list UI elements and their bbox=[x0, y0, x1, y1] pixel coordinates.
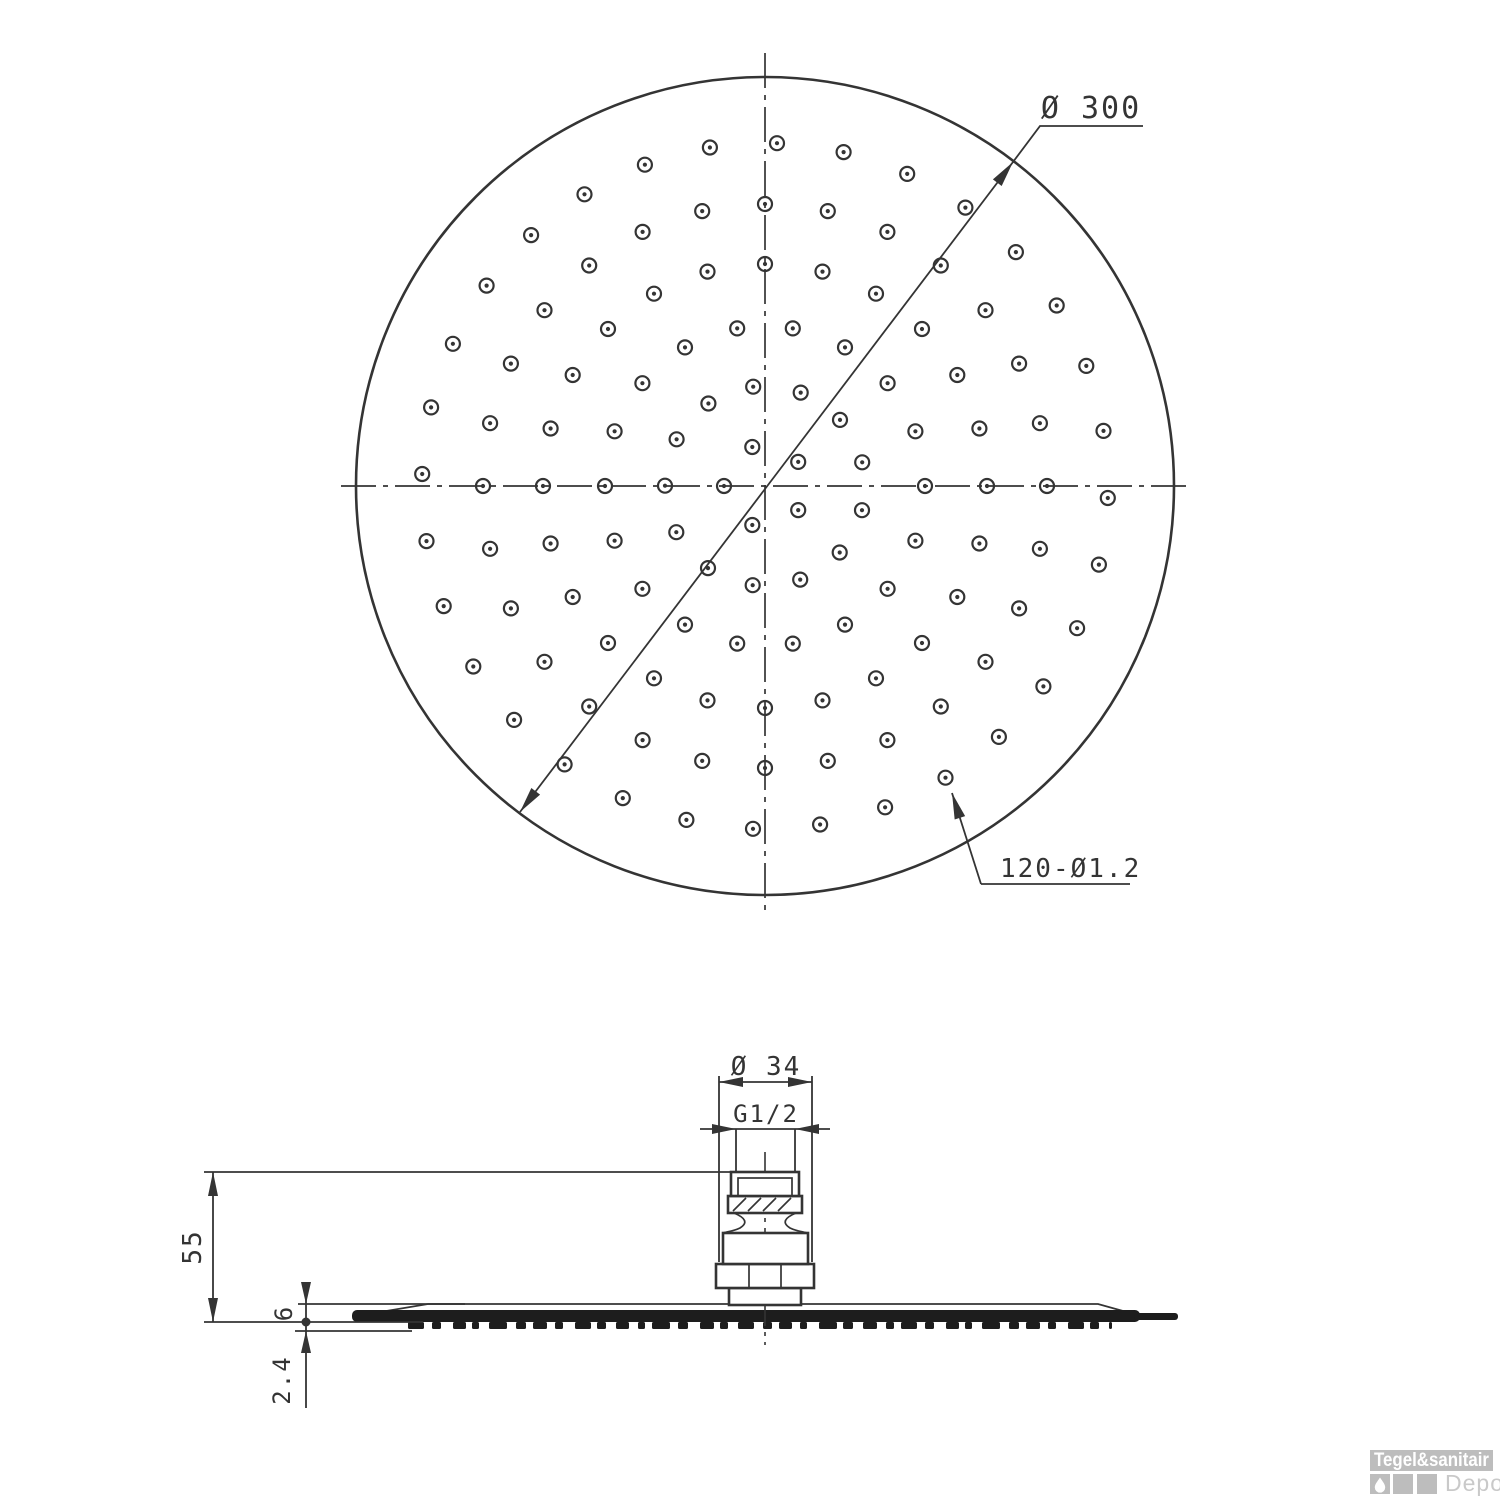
nozzle-tooth bbox=[946, 1322, 959, 1329]
hole-leader-arrow bbox=[947, 791, 965, 819]
technical-drawing-page: Ø 300 120-Ø1.2 bbox=[0, 0, 1500, 1500]
nozzle-hole-center bbox=[700, 209, 704, 213]
shower-head-drawing: Ø 300 120-Ø1.2 bbox=[0, 0, 1500, 1500]
nozzle-hole-center bbox=[1038, 547, 1042, 551]
nozzle-hole-center bbox=[798, 578, 802, 582]
nozzle-hole-center bbox=[791, 642, 795, 646]
nozzle-hole-center bbox=[799, 391, 803, 395]
dim-arrow bbox=[301, 1282, 311, 1304]
nozzle-tooth bbox=[886, 1322, 894, 1329]
nozzle-tooth bbox=[638, 1322, 645, 1329]
nozzle-hole-center bbox=[751, 827, 755, 831]
nozzle-hole-center bbox=[481, 484, 485, 488]
nozzle-hole-center bbox=[1055, 303, 1059, 307]
nozzle-tooth bbox=[1026, 1322, 1040, 1329]
nozzle-tooth bbox=[575, 1322, 591, 1329]
nozzle-hole-center bbox=[943, 776, 947, 780]
nozzle-hole-center bbox=[1101, 429, 1105, 433]
nozzle-tooth bbox=[453, 1322, 466, 1329]
watermark-logo: Tegel&sanitair Depot bbox=[1370, 1450, 1500, 1496]
nozzle-hole-center bbox=[923, 484, 927, 488]
nozzle-hole-center bbox=[1045, 484, 1049, 488]
nozzle-tooth bbox=[555, 1322, 563, 1329]
nozzle-hole-center bbox=[674, 530, 678, 534]
nozzle-hole-center bbox=[700, 759, 704, 763]
nozzle-hole-center bbox=[722, 484, 726, 488]
nozzle-hole-center bbox=[939, 263, 943, 267]
diameter-leader-line bbox=[1013, 126, 1143, 162]
nozzle-hole-center bbox=[939, 704, 943, 708]
nozzle-hole-center bbox=[509, 362, 513, 366]
nozzle-hole-center bbox=[955, 595, 959, 599]
nozzle-hole-center bbox=[542, 660, 546, 664]
dim-plate-thickness: 6 2.4 bbox=[268, 1282, 465, 1408]
connector-collar bbox=[729, 1288, 801, 1305]
nozzle-hole-center bbox=[920, 327, 924, 331]
nozzle-hole-center bbox=[791, 326, 795, 330]
nozzle-hole-center bbox=[488, 547, 492, 551]
diameter-arrow-lower bbox=[516, 788, 540, 815]
nozzle-tooth bbox=[408, 1322, 424, 1329]
dim-label-55: 55 bbox=[178, 1229, 208, 1264]
nozzle-hole-center bbox=[1097, 563, 1101, 567]
nozzle-hole-center bbox=[587, 704, 591, 708]
nozzle-hole-center bbox=[763, 766, 767, 770]
dim-arrow bbox=[208, 1172, 218, 1196]
nozzle-hole-center bbox=[708, 145, 712, 149]
nozzle-hole-center bbox=[983, 308, 987, 312]
nozzle-tooth bbox=[432, 1322, 441, 1329]
nozzle-hole-center bbox=[549, 541, 553, 545]
nozzle-hole-center bbox=[905, 172, 909, 176]
nozzle-hole-center bbox=[485, 284, 489, 288]
dim-dot bbox=[302, 1318, 311, 1327]
diameter-dimension: Ø 300 bbox=[516, 91, 1143, 815]
nozzle-hole-center bbox=[587, 263, 591, 267]
nozzle-hole-center bbox=[640, 587, 644, 591]
nozzle-hole-center bbox=[977, 541, 981, 545]
nozzle-tooth bbox=[819, 1322, 837, 1329]
nozzle-hole-center bbox=[683, 623, 687, 627]
nozzle-hole-center bbox=[1017, 606, 1021, 610]
nozzle-hole-center bbox=[621, 796, 625, 800]
logo-square bbox=[1417, 1474, 1437, 1494]
logo-brand-text: Tegel&sanitair bbox=[1374, 1450, 1490, 1471]
nozzle-hole-center bbox=[838, 418, 842, 422]
connector-body bbox=[723, 1233, 808, 1264]
nozzle-hole-center bbox=[983, 660, 987, 664]
nozzle-hole-center bbox=[429, 405, 433, 409]
nozzle-hole-center bbox=[735, 326, 739, 330]
nozzle-hole-center bbox=[838, 550, 842, 554]
nozzle-tooth bbox=[516, 1322, 526, 1329]
nozzle-hole-center bbox=[885, 230, 889, 234]
nozzle-tooth bbox=[901, 1322, 917, 1329]
nozzle-hole-center bbox=[885, 738, 889, 742]
nozzle-tooth bbox=[1009, 1322, 1019, 1329]
nozzle-hole-center bbox=[977, 426, 981, 430]
nozzle-tooth bbox=[1109, 1322, 1112, 1329]
nozzle-tooth bbox=[472, 1322, 479, 1329]
nozzle-hole-center bbox=[613, 539, 617, 543]
nozzle-hole-center bbox=[571, 373, 575, 377]
logo-depot-text: Depot bbox=[1445, 1470, 1500, 1496]
dim-arrow bbox=[301, 1331, 311, 1353]
nozzle-hole-center bbox=[705, 698, 709, 702]
nozzle-hole-center bbox=[643, 163, 647, 167]
nozzle-hole-center bbox=[820, 270, 824, 274]
nozzle-hole-center bbox=[582, 192, 586, 196]
nozzle-hole-center bbox=[529, 233, 533, 237]
plate-right-tip bbox=[1134, 1313, 1178, 1320]
nozzle-hole-center bbox=[652, 292, 656, 296]
nozzle-hole-center bbox=[641, 738, 645, 742]
nozzle-hole-center bbox=[663, 484, 667, 488]
dim-arrow bbox=[208, 1298, 218, 1322]
nozzle-hole-center bbox=[683, 345, 687, 349]
nozzle-hole-center bbox=[985, 484, 989, 488]
nozzle-hole-center bbox=[820, 698, 824, 702]
nozzle-hole-center bbox=[549, 426, 553, 430]
nozzle-hole-center bbox=[606, 641, 610, 645]
nozzle-tooth bbox=[779, 1322, 792, 1329]
plate-body bbox=[352, 1310, 1140, 1322]
nozzle-hole-center bbox=[675, 437, 679, 441]
dim-label-24: 2.4 bbox=[268, 1355, 296, 1404]
nozzle-hole-center bbox=[796, 460, 800, 464]
nozzle-hole-center bbox=[963, 206, 967, 210]
nozzle-tooth bbox=[720, 1322, 728, 1329]
neck-curve-right bbox=[785, 1213, 807, 1233]
nozzle-tooth bbox=[800, 1322, 807, 1329]
nozzle-tooth bbox=[489, 1322, 507, 1329]
nozzle-hole-center bbox=[751, 385, 755, 389]
nozzle-hole-center bbox=[512, 718, 516, 722]
nozzle-hole-center bbox=[705, 270, 709, 274]
nozzle-hole-center bbox=[843, 623, 847, 627]
nozzle-tooth bbox=[1090, 1322, 1099, 1329]
nozzle-hole-center bbox=[563, 762, 567, 766]
nozzle-hole-center bbox=[442, 604, 446, 608]
side-view: Ø 34 G1/2 55 6 2 bbox=[178, 1052, 1178, 1408]
nozzle-tooth bbox=[597, 1322, 606, 1329]
connector-cap bbox=[731, 1172, 799, 1196]
nozzle-hole-center bbox=[997, 735, 1001, 739]
nozzle-hole-center bbox=[955, 373, 959, 377]
nozzle-hole-center bbox=[706, 401, 710, 405]
nozzle-hole-center bbox=[509, 606, 513, 610]
connector-hex-nut bbox=[716, 1264, 814, 1288]
nozzle-hole-center bbox=[641, 230, 645, 234]
nozzle-hole-center bbox=[874, 676, 878, 680]
nozzle-hole-center bbox=[750, 445, 754, 449]
nozzle-hole-center bbox=[613, 429, 617, 433]
nozzle-hole-center bbox=[886, 587, 890, 591]
nozzle-hole-center bbox=[826, 209, 830, 213]
hole-count-label: 120-Ø1.2 bbox=[1000, 854, 1141, 884]
nozzle-tooth bbox=[533, 1322, 547, 1329]
nozzle-hole-center bbox=[763, 202, 767, 206]
nozzle-tooth bbox=[863, 1322, 877, 1329]
nozzle-hole-center bbox=[886, 381, 890, 385]
nozzle-hole-center bbox=[913, 539, 917, 543]
nozzle-teeth-group bbox=[408, 1322, 1112, 1329]
nozzle-hole-center bbox=[1041, 684, 1045, 688]
nozzle-hole-center bbox=[542, 308, 546, 312]
nozzle-hole-center bbox=[860, 508, 864, 512]
dim-label-34: Ø 34 bbox=[731, 1052, 802, 1082]
dim-height: 55 bbox=[178, 1172, 731, 1322]
nozzle-tooth bbox=[678, 1322, 688, 1329]
nozzle-hole-center bbox=[451, 342, 455, 346]
nozzle-tooth bbox=[965, 1322, 972, 1329]
nozzle-tooth bbox=[1068, 1322, 1084, 1329]
nozzle-tooth bbox=[843, 1322, 853, 1329]
nozzle-hole-center bbox=[818, 822, 822, 826]
neck-curve-left bbox=[723, 1213, 745, 1233]
nozzle-hole-center bbox=[1017, 362, 1021, 366]
nozzle-hole-center bbox=[826, 759, 830, 763]
nozzle-hole-center bbox=[488, 421, 492, 425]
nozzle-hole-center bbox=[652, 676, 656, 680]
logo-square bbox=[1393, 1474, 1413, 1494]
nozzle-hole-center bbox=[571, 595, 575, 599]
nozzle-hole-center bbox=[424, 539, 428, 543]
nozzle-hole-center bbox=[735, 642, 739, 646]
nozzle-tooth bbox=[616, 1322, 629, 1329]
nozzle-tooth bbox=[1048, 1322, 1056, 1329]
nozzle-hole-center bbox=[843, 345, 847, 349]
nozzle-hole-center bbox=[1014, 250, 1018, 254]
nozzle-hole-center bbox=[640, 381, 644, 385]
top-view: Ø 300 120-Ø1.2 bbox=[341, 53, 1190, 912]
nozzle-hole-center bbox=[1038, 421, 1042, 425]
nozzle-hole-center bbox=[883, 805, 887, 809]
nozzle-tooth bbox=[738, 1322, 754, 1329]
nozzle-hole-center bbox=[842, 150, 846, 154]
nozzle-tooth bbox=[652, 1322, 670, 1329]
nozzle-hole-center bbox=[874, 292, 878, 296]
nozzle-hole-center bbox=[750, 523, 754, 527]
nozzle-hole-center bbox=[541, 484, 545, 488]
nozzle-hole-center bbox=[1106, 496, 1110, 500]
nozzle-hole-center bbox=[684, 818, 688, 822]
nozzle-hole-center bbox=[763, 706, 767, 710]
nozzle-hole-center bbox=[763, 262, 767, 266]
nozzle-hole-center bbox=[1084, 364, 1088, 368]
nozzle-hole-center bbox=[420, 472, 424, 476]
nozzle-tooth bbox=[982, 1322, 1000, 1329]
nozzle-hole-center bbox=[606, 327, 610, 331]
dim-label-6: 6 bbox=[270, 1305, 298, 1321]
nozzle-tooth bbox=[925, 1322, 934, 1329]
nozzle-hole-center bbox=[860, 460, 864, 464]
nozzle-hole-center bbox=[751, 583, 755, 587]
nozzle-hole-center bbox=[603, 484, 607, 488]
nozzle-hole-center bbox=[1075, 626, 1079, 630]
nozzle-hole-center bbox=[471, 664, 475, 668]
nozzle-tooth bbox=[700, 1322, 714, 1329]
nozzle-hole-center bbox=[920, 641, 924, 645]
diameter-label: Ø 300 bbox=[1041, 91, 1141, 126]
nozzle-hole-center bbox=[775, 141, 779, 145]
nozzle-hole-center bbox=[796, 508, 800, 512]
nozzle-hole-center bbox=[913, 429, 917, 433]
dim-label-g12: G1/2 bbox=[733, 1100, 799, 1128]
